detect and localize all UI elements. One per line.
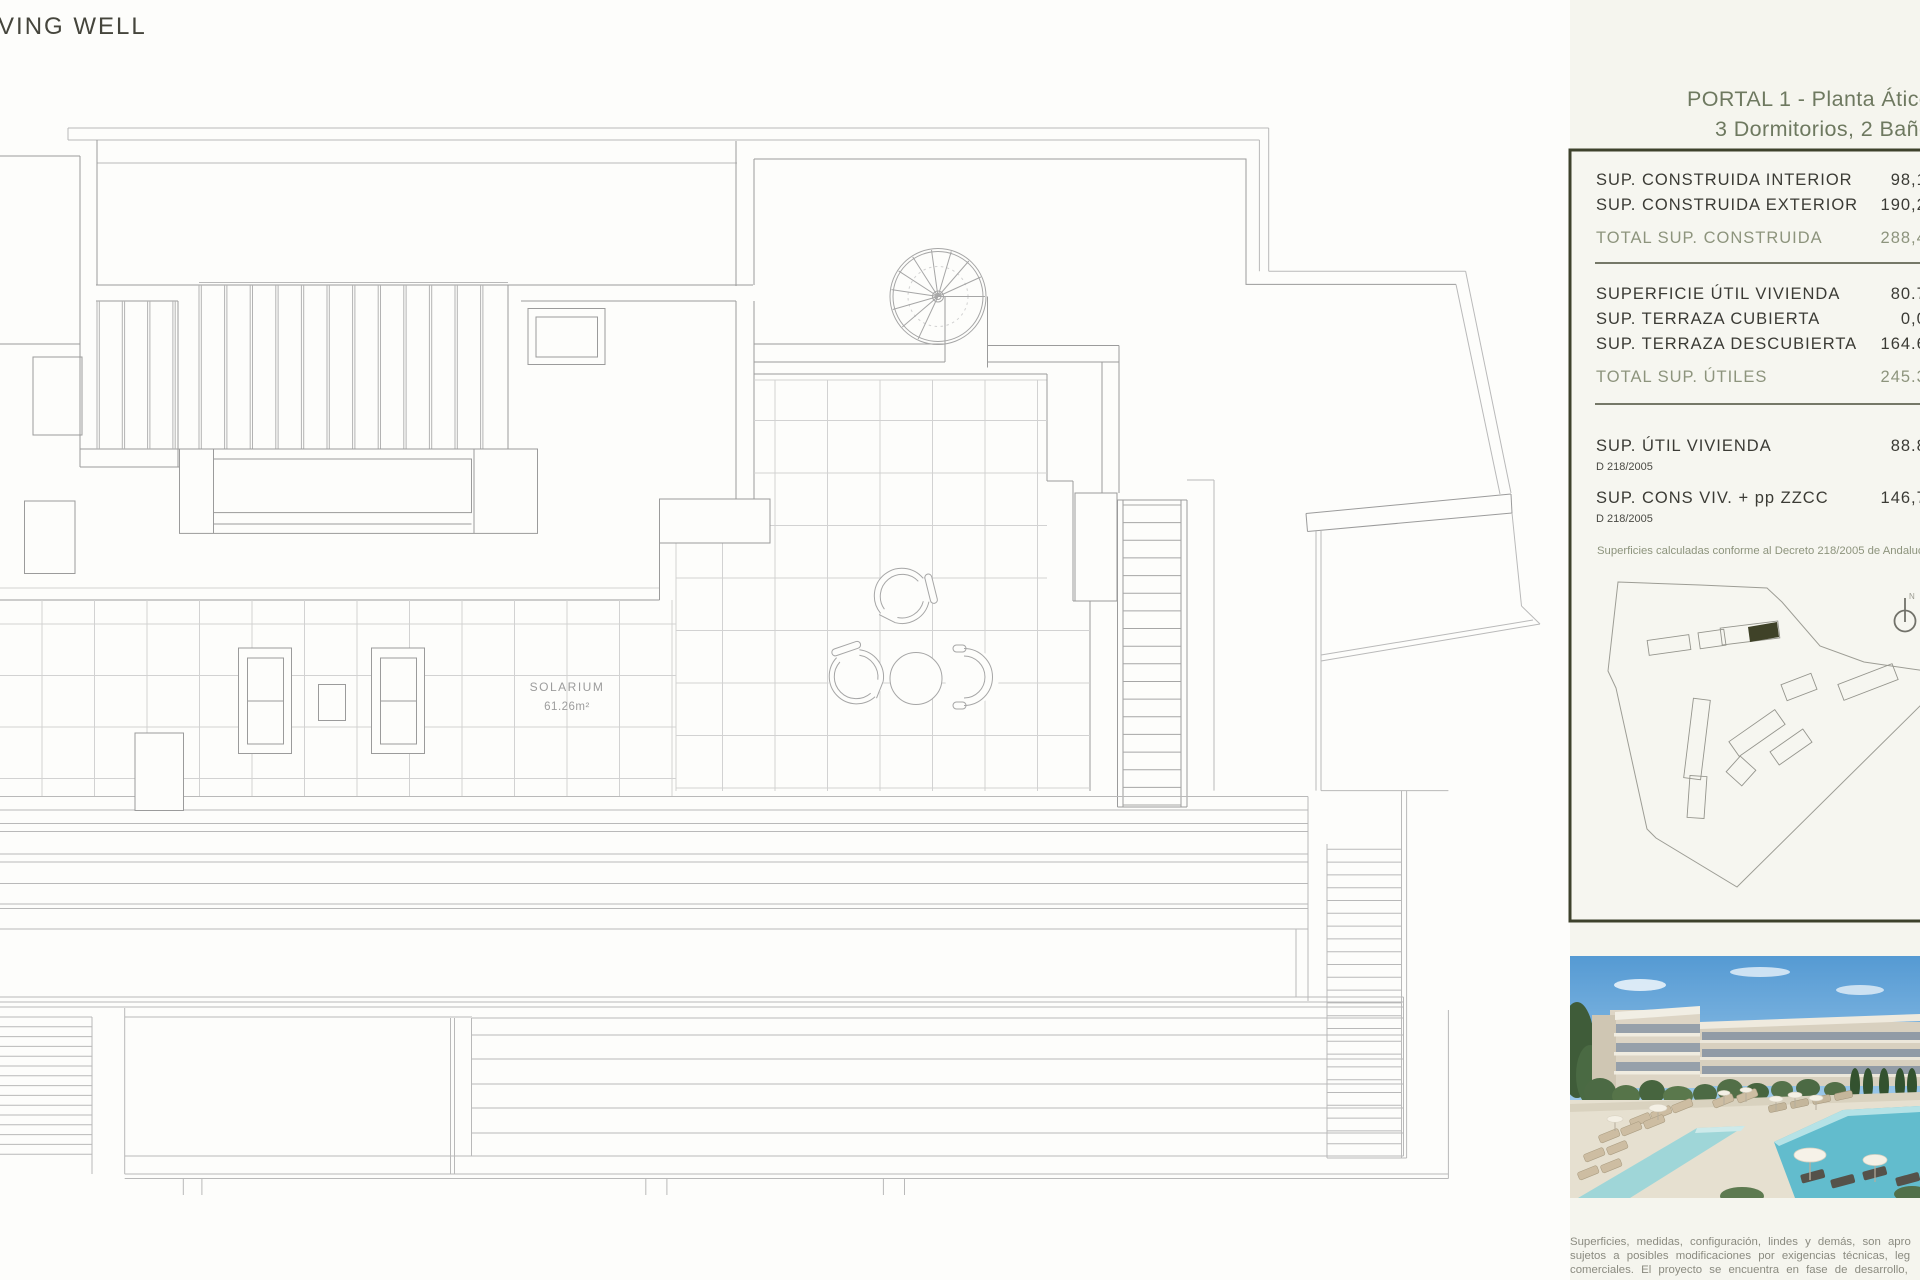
svg-text:0,00: 0,00 [1901, 310, 1920, 328]
svg-text:Superficies calculadas conform: Superficies calculadas conforme al Decre… [1597, 545, 1920, 557]
svg-text:N: N [1909, 592, 1915, 601]
svg-text:SUP. TERRAZA DESCUBIERTA: SUP. TERRAZA DESCUBIERTA [1596, 335, 1857, 353]
svg-text:Superficies, medidas, configur: Superficies, medidas, configuración, lin… [1570, 1236, 1911, 1248]
svg-text:PORTAL 1 - Planta Ático 11: PORTAL 1 - Planta Ático 11 [1687, 86, 1920, 111]
svg-text:3 Dormitorios, 2 Baños: 3 Dormitorios, 2 Baños [1715, 117, 1920, 141]
svg-text:TOTAL SUP. ÚTILES: TOTAL SUP. ÚTILES [1596, 367, 1767, 386]
svg-text:SUP. CONSTRUIDA EXTERIOR: SUP. CONSTRUIDA EXTERIOR [1596, 196, 1858, 214]
svg-text:comerciales. El proyecto se en: comerciales. El proyecto se encuentra en… [1570, 1264, 1908, 1276]
svg-text:164.66: 164.66 [1881, 335, 1920, 353]
svg-text:SUP. ÚTIL VIVIENDA: SUP. ÚTIL VIVIENDA [1596, 436, 1772, 455]
svg-text:SUP. TERRAZA CUBIERTA: SUP. TERRAZA CUBIERTA [1596, 310, 1820, 328]
svg-text:80.73: 80.73 [1891, 285, 1920, 303]
svg-text:245.39: 245.39 [1881, 368, 1920, 386]
svg-text:61.26m²: 61.26m² [544, 701, 590, 713]
svg-text:190,25: 190,25 [1881, 196, 1920, 214]
svg-text:LIVING WELL: LIVING WELL [0, 13, 147, 40]
svg-text:SUP. CONSTRUIDA INTERIOR: SUP. CONSTRUIDA INTERIOR [1596, 171, 1853, 189]
svg-text:D 218/2005: D 218/2005 [1596, 461, 1653, 473]
svg-text:D 218/2005: D 218/2005 [1596, 513, 1653, 525]
svg-text:SUP. CONS VIV. + pp ZZCC: SUP. CONS VIV. + pp ZZCC [1596, 489, 1829, 507]
svg-text:288,40: 288,40 [1881, 229, 1920, 247]
svg-text:98,10: 98,10 [1891, 171, 1920, 189]
svg-text:SOLARIUM: SOLARIUM [530, 680, 605, 694]
svg-text:SUPERFICIE ÚTIL VIVIENDA: SUPERFICIE ÚTIL VIVIENDA [1596, 284, 1840, 303]
svg-text:TOTAL SUP. CONSTRUIDA: TOTAL SUP. CONSTRUIDA [1596, 229, 1823, 247]
svg-text:146,75: 146,75 [1881, 489, 1920, 507]
svg-text:sujetos a posibles modificacio: sujetos a posibles modificaciones por ex… [1570, 1250, 1910, 1262]
svg-text:88.85: 88.85 [1891, 437, 1920, 455]
